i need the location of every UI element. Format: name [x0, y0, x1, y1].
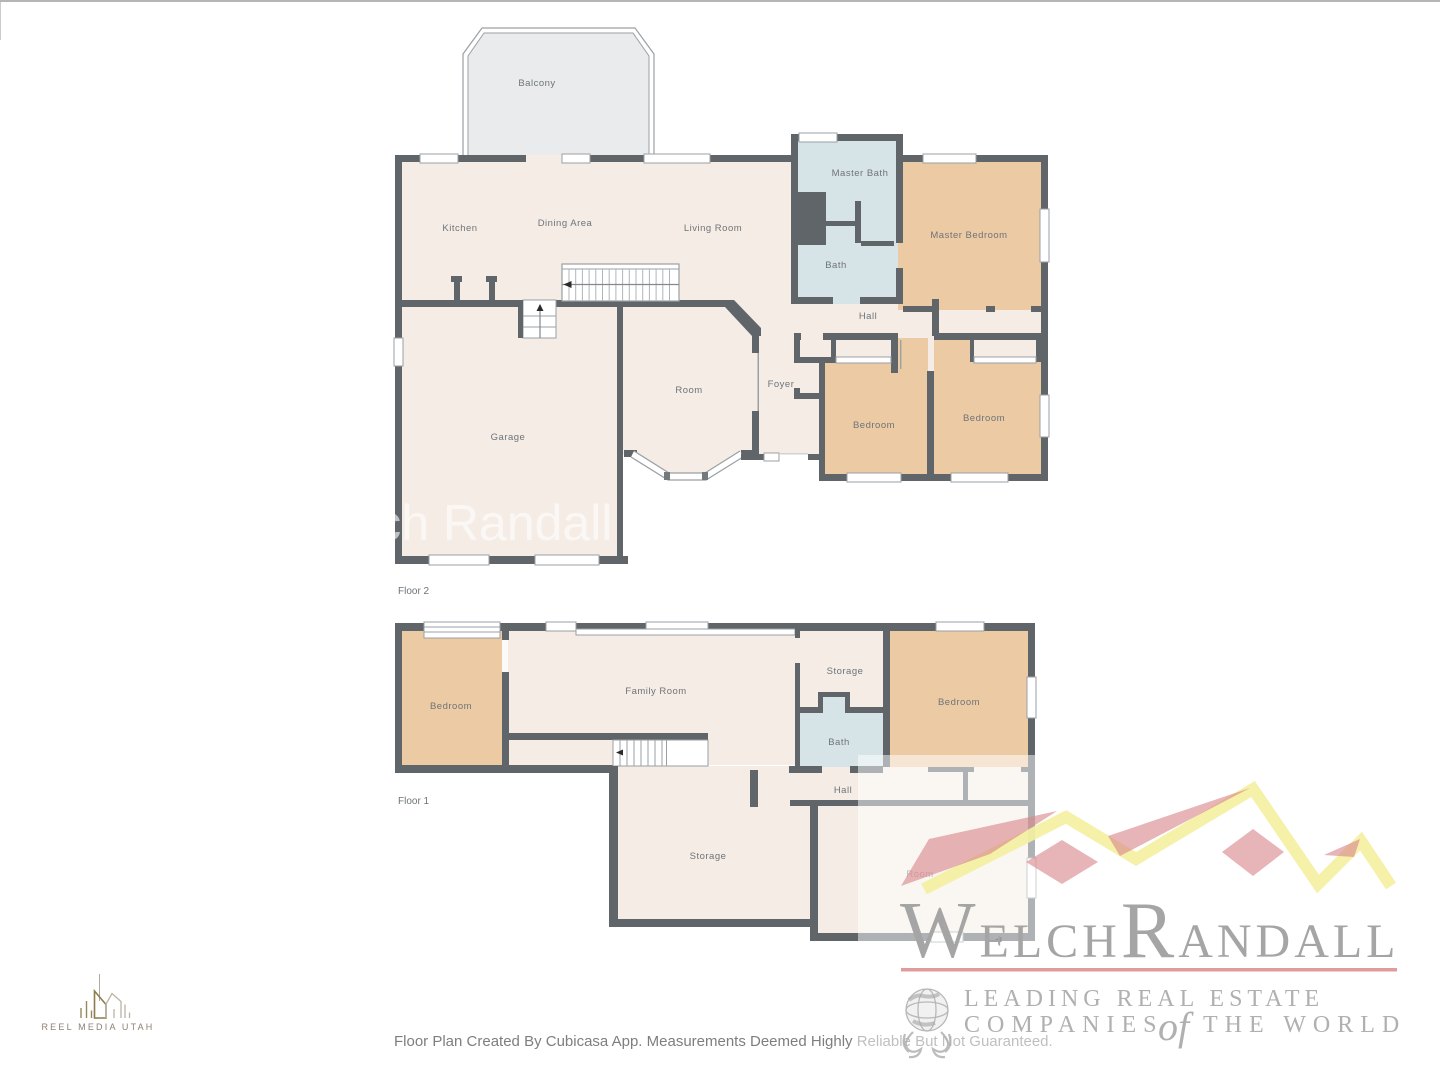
svg-text:of: of: [1158, 1004, 1194, 1049]
svg-text:Kitchen: Kitchen: [442, 223, 477, 234]
svg-text:Master Bedroom: Master Bedroom: [930, 230, 1007, 241]
svg-text:LEADING REAL ESTATE: LEADING REAL ESTATE: [964, 986, 1324, 1012]
svg-text:Bath: Bath: [825, 260, 847, 271]
svg-text:Storage: Storage: [827, 666, 864, 677]
svg-text:Hall: Hall: [859, 311, 877, 322]
svg-text:Floor 2: Floor 2: [398, 586, 430, 597]
svg-text:Bedroom: Bedroom: [853, 420, 895, 431]
svg-text:Living Room: Living Room: [684, 223, 742, 234]
svg-text:Storage: Storage: [690, 851, 727, 862]
svg-text:Dining Area: Dining Area: [538, 218, 593, 229]
svg-text:REEL MEDIA UTAH: REEL MEDIA UTAH: [41, 1022, 154, 1032]
svg-text:Room: Room: [675, 385, 702, 396]
svg-text:THE WORLD: THE WORLD: [1203, 1012, 1406, 1038]
svg-text:Balcony: Balcony: [518, 78, 555, 89]
svg-text:Garage: Garage: [491, 432, 526, 443]
svg-text:Master Bath: Master Bath: [832, 168, 889, 179]
svg-text:Bath: Bath: [828, 737, 850, 748]
svg-text:Foyer: Foyer: [768, 379, 795, 390]
svg-text:Bedroom: Bedroom: [938, 697, 980, 708]
svg-text:Family Room: Family Room: [625, 686, 686, 697]
svg-text:COMPANIES: COMPANIES: [964, 1012, 1164, 1038]
svg-text:Welch Randall: Welch Randall: [291, 495, 612, 551]
svg-text:Hall: Hall: [834, 785, 852, 796]
svg-text:Floor 1: Floor 1: [398, 796, 430, 807]
svg-text:Bedroom: Bedroom: [430, 701, 472, 712]
svg-text:Bedroom: Bedroom: [963, 413, 1005, 424]
